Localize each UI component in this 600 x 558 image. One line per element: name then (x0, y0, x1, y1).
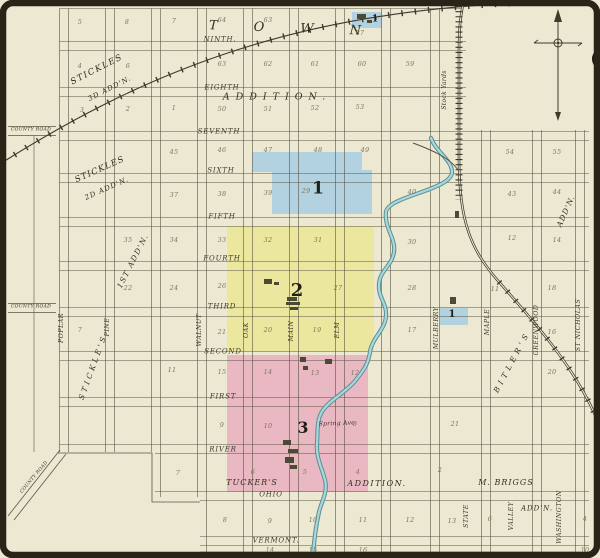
district-3-pink-area (227, 355, 368, 492)
building-footprint (303, 366, 308, 370)
district-1-blue-area (272, 170, 372, 214)
building-footprint (290, 465, 297, 469)
sanborn-map-sheet: NINTH.EIGHTHSEVENTHSIXTHFIFTHFOURTHTHIRD… (0, 0, 600, 558)
building-footprint (288, 449, 298, 453)
building-footprint (325, 359, 332, 364)
building-footprint (290, 307, 298, 310)
building-footprint (283, 440, 291, 445)
building-footprint (264, 279, 272, 284)
building-footprint (455, 211, 459, 218)
building-footprint (357, 14, 366, 19)
building-footprint (367, 20, 372, 23)
building-footprint (450, 297, 456, 304)
building-footprint (300, 357, 306, 362)
building-footprint (274, 282, 279, 285)
building-footprint (287, 297, 297, 301)
map-canvas (0, 0, 600, 558)
building-footprint (285, 457, 294, 463)
district-2-yellow-area (227, 226, 374, 351)
building-footprint (286, 302, 300, 305)
district-1-blue-area (252, 152, 362, 172)
